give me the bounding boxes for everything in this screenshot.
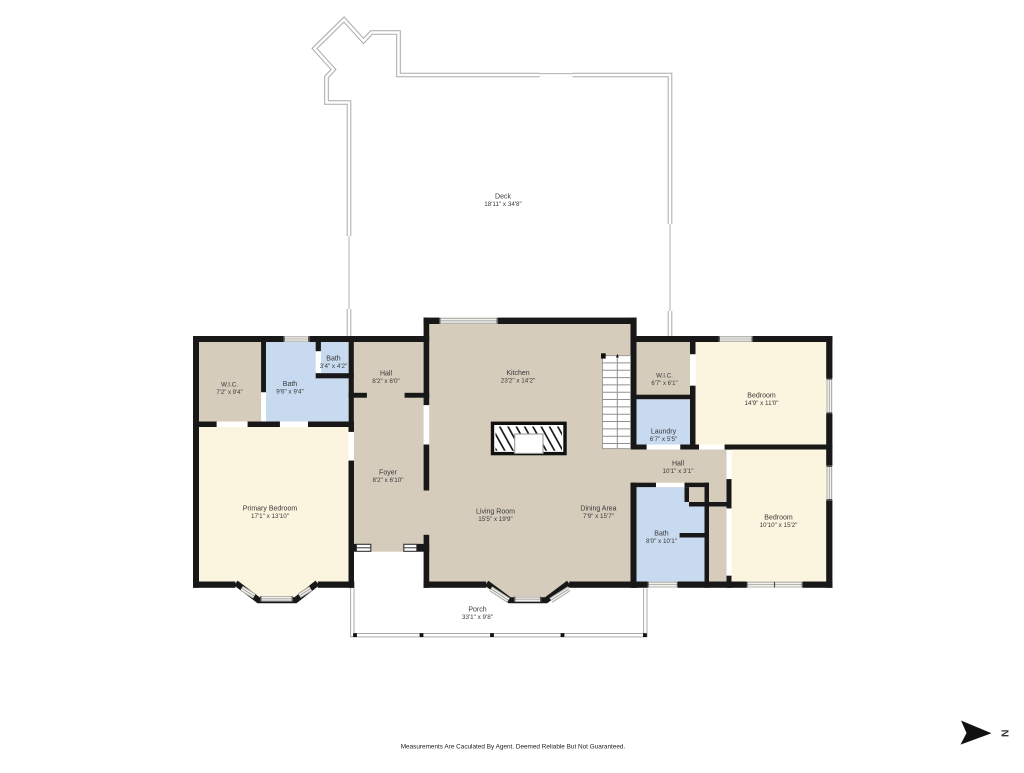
svg-text:10'10" x 15'2": 10'10" x 15'2" [759, 522, 797, 529]
svg-text:Bedroom: Bedroom [747, 393, 776, 400]
svg-text:Living Room: Living Room [476, 509, 515, 516]
svg-text:Primary Bedroom: Primary Bedroom [243, 506, 298, 513]
svg-text:8'0" x 10'1": 8'0" x 10'1" [646, 538, 677, 545]
svg-text:10'1" x 3'1": 10'1" x 3'1" [662, 468, 693, 475]
svg-text:3'4" x 4'2": 3'4" x 4'2" [320, 363, 348, 370]
svg-text:Kitchen: Kitchen [506, 370, 529, 377]
svg-text:9'6" x 9'4": 9'6" x 9'4" [276, 389, 304, 396]
svg-text:7'2" x 9'4": 7'2" x 9'4" [216, 390, 242, 396]
svg-text:14'9" x 11'0": 14'9" x 11'0" [744, 400, 778, 407]
svg-text:Deck: Deck [495, 194, 511, 201]
svg-text:Laundry: Laundry [651, 429, 677, 436]
svg-text:Hall: Hall [672, 461, 685, 468]
svg-text:W.I.C.: W.I.C. [221, 382, 238, 389]
svg-text:Bath: Bath [283, 381, 298, 388]
svg-text:Dining Area: Dining Area [580, 506, 616, 513]
svg-text:W.I.C.: W.I.C. [656, 373, 673, 380]
svg-text:Hall: Hall [380, 371, 393, 378]
svg-text:33'1" x 9'8": 33'1" x 9'8" [462, 614, 493, 621]
svg-text:17'1" x 13'10": 17'1" x 13'10" [251, 513, 289, 520]
svg-text:8'2" x 6'0": 8'2" x 6'0" [372, 378, 400, 385]
svg-text:7'9" x 15'7": 7'9" x 15'7" [583, 513, 614, 520]
svg-text:23'2" x 14'2": 23'2" x 14'2" [501, 378, 536, 385]
svg-text:Bedroom: Bedroom [764, 515, 793, 522]
svg-text:8'2" x 6'10": 8'2" x 6'10" [372, 477, 403, 484]
svg-text:Bath: Bath [654, 531, 669, 538]
svg-text:Foyer: Foyer [379, 470, 398, 477]
svg-text:Measurements Are Caculated By: Measurements Are Caculated By Agent. Dee… [401, 744, 626, 751]
svg-text:N: N [999, 730, 1011, 738]
svg-text:6'7" x 5'5": 6'7" x 5'5" [650, 436, 678, 443]
svg-text:Porch: Porch [468, 607, 486, 614]
svg-text:18'11" x 34'8": 18'11" x 34'8" [484, 201, 522, 208]
svg-text:15'5" x 19'9": 15'5" x 19'9" [478, 516, 513, 523]
svg-text:6'7" x 6'1": 6'7" x 6'1" [651, 381, 677, 387]
svg-text:Bath: Bath [326, 356, 341, 363]
